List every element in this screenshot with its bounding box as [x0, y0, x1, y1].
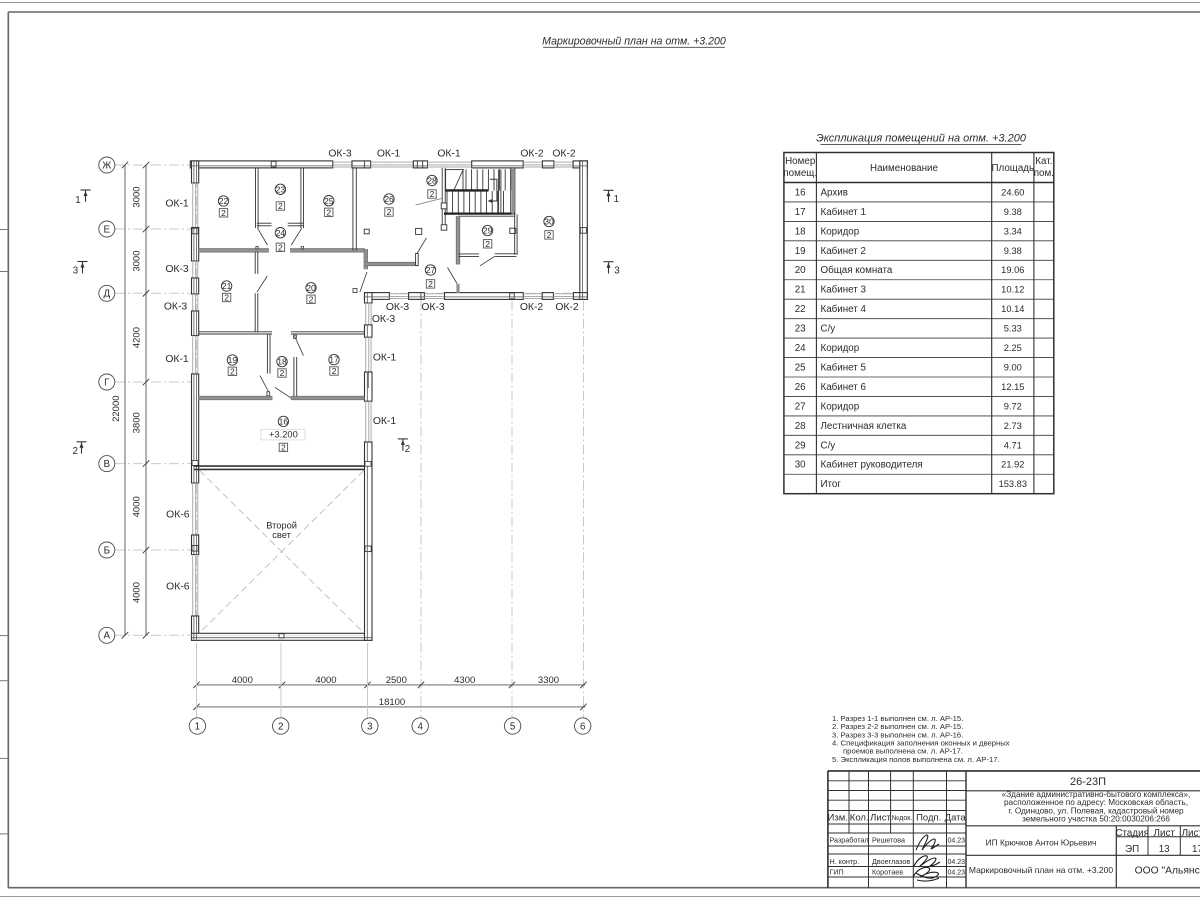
- svg-text:Лестничная клетка: Лестничная клетка: [821, 421, 907, 432]
- svg-text:29: 29: [483, 226, 493, 236]
- svg-text:Архив: Архив: [821, 187, 848, 198]
- svg-text:Коридор: Коридор: [821, 343, 860, 354]
- svg-text:ОК-1: ОК-1: [437, 148, 461, 159]
- svg-text:5: 5: [510, 721, 516, 732]
- svg-text:3000: 3000: [132, 251, 143, 272]
- svg-text:Кабинет 1: Кабинет 1: [821, 207, 866, 218]
- svg-text:25: 25: [324, 196, 334, 206]
- svg-text:4200: 4200: [132, 327, 143, 348]
- svg-text:Кол.: Кол.: [850, 812, 869, 823]
- svg-text:18100: 18100: [379, 697, 405, 708]
- svg-text:24: 24: [795, 343, 806, 354]
- svg-text:2.25: 2.25: [1004, 343, 1022, 353]
- svg-text:2: 2: [72, 446, 77, 457]
- svg-text:23: 23: [795, 324, 806, 335]
- svg-text:ОК-1: ОК-1: [373, 416, 397, 427]
- svg-text:С/у: С/у: [821, 324, 836, 335]
- svg-text:пом.: пом.: [1034, 168, 1054, 179]
- svg-text:9.00: 9.00: [1004, 362, 1022, 372]
- svg-text:Кабинет 2: Кабинет 2: [821, 246, 866, 257]
- svg-text:2: 2: [281, 443, 286, 453]
- svg-text:свет: свет: [272, 530, 291, 540]
- svg-text:22000: 22000: [111, 395, 122, 421]
- svg-text:4.71: 4.71: [1004, 440, 1022, 450]
- svg-text:Коридор: Коридор: [821, 226, 860, 237]
- svg-text:ИП Крючков Антон Юрьевич: ИП Крючков Антон Юрьевич: [986, 837, 1097, 847]
- svg-text:ОК-3: ОК-3: [386, 302, 410, 313]
- svg-text:Кат.: Кат.: [1035, 156, 1052, 167]
- svg-text:Лист: Лист: [1154, 828, 1176, 839]
- svg-text:30: 30: [544, 217, 554, 227]
- svg-text:27: 27: [795, 401, 806, 412]
- svg-text:9.38: 9.38: [1004, 246, 1022, 256]
- svg-text:Листов: Листов: [1182, 828, 1200, 839]
- svg-text:22: 22: [219, 196, 229, 206]
- svg-text:Кабинет 3: Кабинет 3: [821, 285, 867, 296]
- svg-text:3300: 3300: [538, 675, 559, 686]
- svg-text:2: 2: [221, 208, 226, 218]
- svg-text:ОК-1: ОК-1: [165, 199, 189, 210]
- svg-text:2: 2: [326, 207, 331, 217]
- svg-text:2: 2: [387, 207, 392, 217]
- svg-text:ОК-1: ОК-1: [377, 148, 401, 159]
- svg-text:26: 26: [795, 382, 806, 393]
- svg-text:29: 29: [795, 440, 806, 451]
- svg-text:Изм.: Изм.: [828, 812, 848, 823]
- svg-text:ЭП: ЭП: [1125, 844, 1139, 855]
- svg-text:2: 2: [309, 294, 314, 304]
- svg-text:04.23: 04.23: [948, 869, 966, 876]
- svg-text:30: 30: [795, 460, 806, 471]
- svg-text:12.15: 12.15: [1001, 382, 1024, 392]
- svg-text:4000: 4000: [132, 582, 143, 603]
- svg-text:2: 2: [485, 239, 490, 249]
- svg-text:Итог: Итог: [821, 479, 842, 490]
- svg-text:Е: Е: [104, 224, 111, 235]
- svg-text:В: В: [104, 459, 111, 470]
- svg-text:4000: 4000: [132, 496, 143, 517]
- svg-text:Маркировочный план на отм. +3.: Маркировочный план на отм. +3.200: [542, 36, 726, 48]
- svg-text:2: 2: [547, 230, 552, 240]
- svg-text:ОК-3: ОК-3: [328, 148, 352, 159]
- svg-text:ОК-6: ОК-6: [166, 510, 190, 521]
- svg-text:Дата: Дата: [945, 812, 967, 823]
- svg-text:3: 3: [367, 721, 373, 732]
- svg-text:Ж: Ж: [102, 160, 111, 171]
- svg-text:+3.200: +3.200: [269, 430, 298, 440]
- svg-text:ОК-2: ОК-2: [552, 148, 576, 159]
- svg-text:Коротаев: Коротаев: [872, 868, 903, 877]
- svg-text:Н. контр.: Н. контр.: [830, 857, 860, 866]
- svg-text:10.12: 10.12: [1001, 285, 1024, 295]
- svg-text:Кабинет 4: Кабинет 4: [821, 304, 867, 315]
- svg-text:Д: Д: [103, 289, 110, 300]
- svg-text:04.23: 04.23: [948, 859, 966, 866]
- svg-text:ОК-2: ОК-2: [520, 148, 544, 159]
- svg-text:5.33: 5.33: [1004, 324, 1022, 334]
- svg-text:Номер: Номер: [785, 156, 816, 167]
- svg-text:20: 20: [795, 265, 806, 276]
- svg-text:2500: 2500: [386, 675, 407, 686]
- svg-text:1: 1: [195, 721, 200, 732]
- svg-text:25: 25: [795, 362, 806, 373]
- svg-text:2: 2: [280, 368, 285, 378]
- svg-text:16: 16: [795, 187, 806, 198]
- svg-text:1: 1: [75, 195, 80, 206]
- svg-text:2: 2: [278, 242, 283, 252]
- svg-text:4000: 4000: [315, 675, 336, 686]
- svg-text:19: 19: [228, 355, 238, 365]
- svg-text:21: 21: [795, 285, 806, 296]
- svg-text:16: 16: [279, 417, 289, 427]
- svg-text:Решетова: Решетова: [872, 836, 905, 845]
- svg-text:Наименование: Наименование: [870, 163, 938, 174]
- svg-text:ООО "Альянс": ООО "Альянс": [1135, 866, 1200, 877]
- svg-text:Кабинет 5: Кабинет 5: [821, 362, 867, 373]
- svg-text:2: 2: [405, 444, 410, 455]
- svg-text:13: 13: [1159, 844, 1170, 855]
- svg-text:4300: 4300: [454, 675, 475, 686]
- svg-text:27: 27: [426, 265, 436, 275]
- svg-text:22: 22: [795, 304, 806, 315]
- svg-text:Б: Б: [104, 545, 110, 556]
- svg-text:153.83: 153.83: [999, 479, 1027, 489]
- svg-text:2: 2: [278, 721, 283, 732]
- svg-text:18: 18: [795, 226, 806, 237]
- svg-text:21.92: 21.92: [1001, 460, 1024, 470]
- svg-text:Двоеглазов: Двоеглазов: [872, 857, 910, 866]
- svg-text:ОК-3: ОК-3: [165, 264, 189, 275]
- svg-text:21: 21: [222, 281, 232, 291]
- svg-text:Г: Г: [104, 377, 110, 388]
- svg-text:ОК-3: ОК-3: [421, 302, 445, 313]
- svg-text:земельного участка 50:20:00302: земельного участка 50:20:0030206:266: [1022, 815, 1170, 824]
- svg-text:А: А: [104, 631, 111, 642]
- svg-text:18: 18: [277, 357, 287, 367]
- svg-text:3000: 3000: [132, 186, 143, 207]
- svg-text:ОК-6: ОК-6: [166, 582, 190, 593]
- svg-text:2.73: 2.73: [1004, 421, 1022, 431]
- svg-text:3.34: 3.34: [1004, 226, 1022, 236]
- svg-text:17: 17: [1192, 844, 1200, 855]
- svg-text:28: 28: [427, 176, 437, 186]
- svg-text:2: 2: [278, 201, 283, 211]
- svg-text:2: 2: [224, 293, 229, 303]
- svg-text:9.38: 9.38: [1004, 207, 1022, 217]
- svg-text:26: 26: [384, 194, 394, 204]
- svg-text:17: 17: [795, 207, 806, 218]
- svg-text:ОК-1: ОК-1: [373, 352, 397, 363]
- svg-text:5. Экспликация полов выполнена: 5. Экспликация полов выполнена см. л. АР…: [832, 755, 1000, 764]
- svg-text:ОК-1: ОК-1: [165, 354, 189, 365]
- svg-text:4000: 4000: [232, 675, 253, 686]
- svg-text:20: 20: [306, 283, 316, 293]
- svg-text:Маркировочный план на отм. +3.: Маркировочный план на отм. +3.200: [969, 865, 1113, 875]
- svg-text:№док.: №док.: [892, 815, 913, 822]
- svg-text:2: 2: [332, 366, 337, 376]
- svg-text:23: 23: [276, 184, 286, 194]
- svg-text:Экспликация помещений на отм.: Экспликация помещений на отм. +3.200: [816, 133, 1027, 145]
- svg-text:1: 1: [614, 194, 619, 205]
- svg-text:ОК-2: ОК-2: [555, 302, 579, 313]
- svg-text:Лист: Лист: [870, 812, 891, 823]
- svg-text:Общая комната: Общая комната: [821, 265, 893, 276]
- svg-text:24: 24: [276, 228, 286, 238]
- svg-text:помещ.: помещ.: [783, 168, 817, 179]
- svg-text:17: 17: [329, 355, 339, 365]
- svg-text:2: 2: [428, 279, 433, 289]
- svg-text:ОК-3: ОК-3: [372, 314, 396, 325]
- svg-text:3800: 3800: [132, 412, 143, 433]
- svg-text:26-23П: 26-23П: [1070, 776, 1106, 788]
- svg-text:2: 2: [430, 189, 435, 199]
- svg-text:ОК-2: ОК-2: [520, 302, 544, 313]
- svg-text:Кабинет 6: Кабинет 6: [821, 382, 867, 393]
- svg-text:6: 6: [580, 721, 586, 732]
- svg-text:10.14: 10.14: [1001, 304, 1024, 314]
- svg-text:С/у: С/у: [821, 440, 836, 451]
- svg-text:24.60: 24.60: [1001, 187, 1024, 197]
- svg-text:19.06: 19.06: [1001, 265, 1024, 275]
- svg-text:04.23: 04.23: [948, 838, 966, 845]
- svg-text:2: 2: [230, 366, 235, 376]
- svg-text:Разработал: Разработал: [830, 836, 869, 845]
- svg-text:Коридор: Коридор: [821, 401, 860, 412]
- svg-text:Кабинет руководителя: Кабинет руководителя: [821, 460, 923, 471]
- svg-text:28: 28: [795, 421, 806, 432]
- svg-text:Подп.: Подп.: [916, 812, 941, 823]
- svg-text:9.72: 9.72: [1004, 401, 1022, 411]
- svg-text:Стадия: Стадия: [1115, 828, 1148, 839]
- svg-text:3: 3: [73, 266, 79, 277]
- svg-text:Площадь: Площадь: [991, 163, 1034, 174]
- svg-text:ОК-3: ОК-3: [164, 302, 188, 313]
- svg-text:19: 19: [795, 246, 806, 257]
- svg-text:ГИП: ГИП: [830, 868, 844, 877]
- svg-text:4: 4: [417, 721, 423, 732]
- svg-text:3: 3: [614, 266, 620, 277]
